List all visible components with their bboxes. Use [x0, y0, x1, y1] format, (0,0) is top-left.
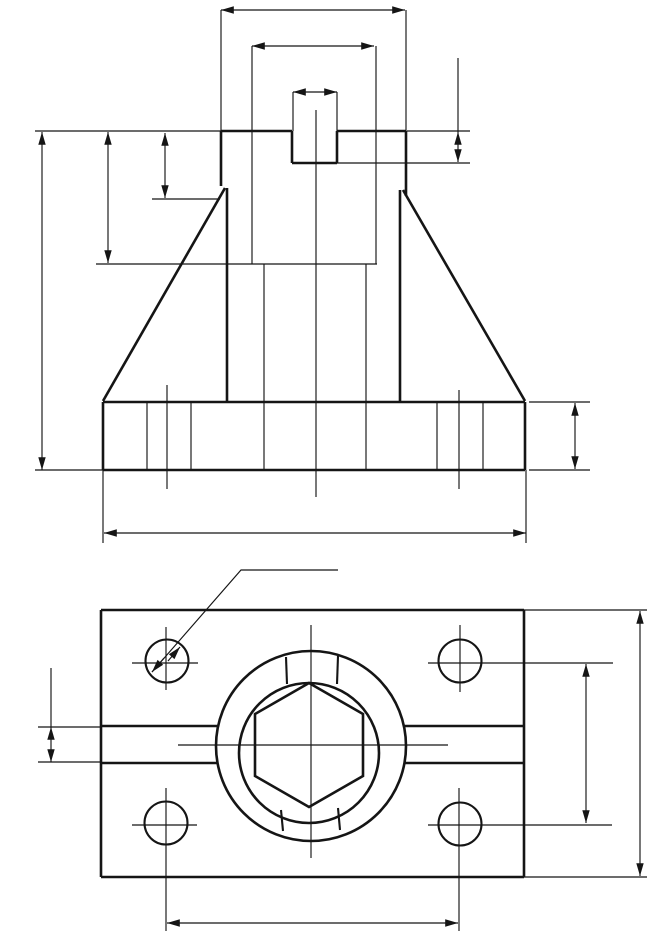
boss-inner-circle: [239, 683, 379, 823]
leader-arrow: [152, 658, 164, 672]
part-edge: [286, 657, 287, 684]
leader-line: [152, 570, 338, 672]
leader-arrow: [168, 647, 180, 661]
front-view: [35, 10, 590, 543]
part-edge: [281, 810, 283, 831]
drawing-svg: [0, 0, 649, 931]
top-view: [38, 570, 647, 931]
part-edge: [338, 808, 340, 830]
part-edge: [403, 190, 525, 401]
drawing-page: [0, 0, 649, 931]
corner-hole: [146, 640, 189, 683]
part-edge: [103, 188, 225, 401]
corner-hole: [439, 803, 482, 846]
part-edge: [337, 656, 338, 684]
